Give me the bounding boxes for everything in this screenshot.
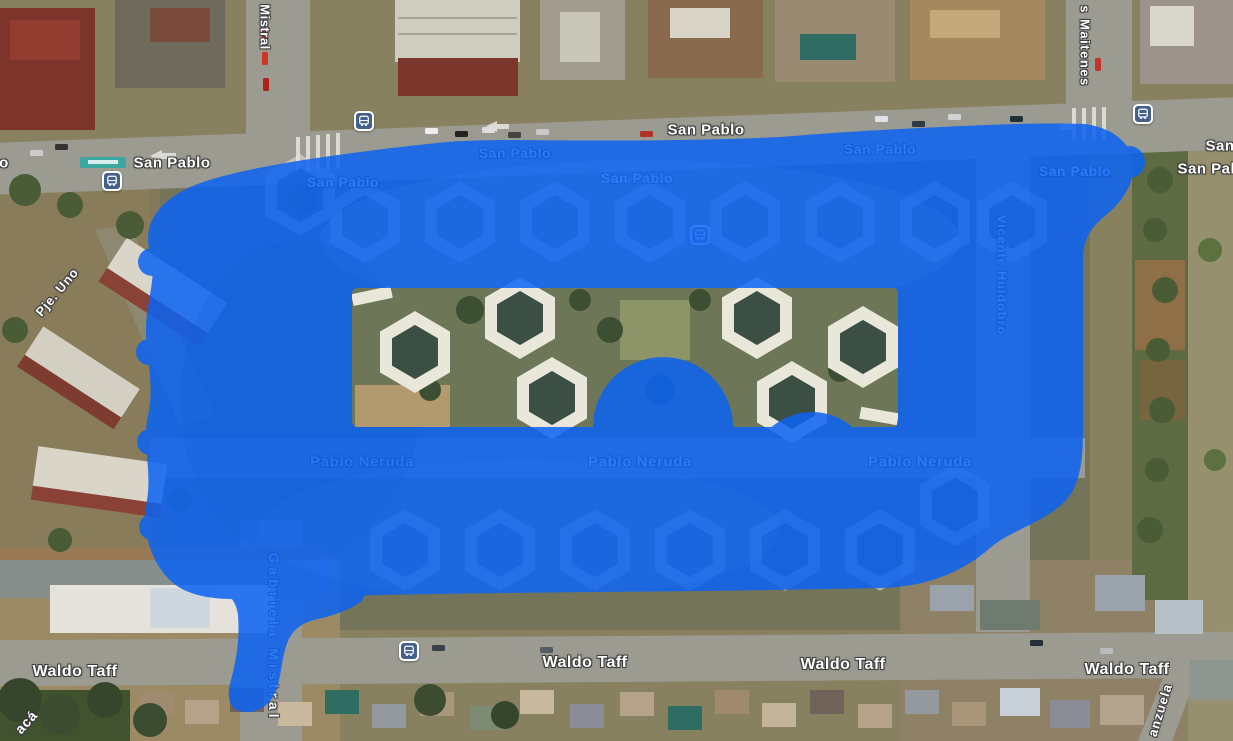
highlight-region-overlay[interactable] [0,0,1233,741]
map-canvas[interactable]: Mistrals MaitenesoSan PabloSan PabloSan … [0,0,1233,741]
